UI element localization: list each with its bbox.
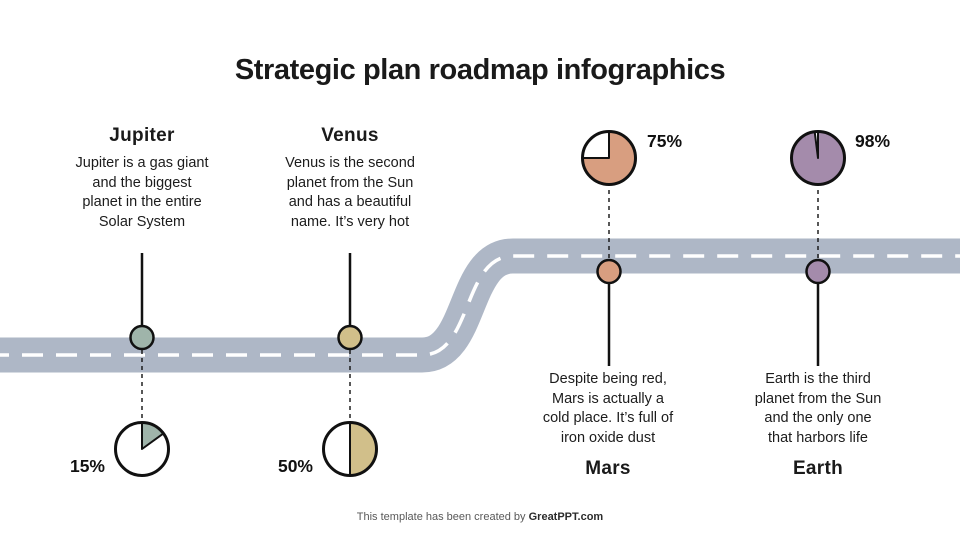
marker-dot-venus [339, 326, 362, 349]
planet-description-earth: Earth is the third planet from the Sun a… [708, 370, 928, 448]
marker-earth [807, 190, 830, 366]
pie-chart-mars [578, 127, 640, 189]
planet-description-mars: Despite being red, Mars is actually a co… [498, 370, 718, 448]
marker-dot-mars [598, 260, 621, 283]
marker-venus [339, 253, 362, 419]
planet-description-jupiter: Jupiter is a gas giant and the biggest p… [32, 154, 252, 232]
footer: This template has been created by GreatP… [0, 511, 960, 523]
marker-mars [598, 190, 621, 366]
marker-jupiter [131, 253, 154, 419]
planet-heading-mars: Mars [498, 458, 718, 480]
percent-label-venus: 50% [233, 456, 313, 478]
planet-heading-jupiter: Jupiter [32, 125, 252, 147]
slide: Strategic plan roadmap infographics [0, 0, 960, 540]
percent-label-mars: 75% [647, 131, 727, 153]
percent-label-jupiter: 15% [25, 456, 105, 478]
footer-brand: GreatPPT.com [529, 511, 604, 523]
pie-chart-venus [319, 418, 381, 480]
pie-chart-earth [787, 127, 849, 189]
pie-chart-jupiter [111, 418, 173, 480]
marker-dot-earth [807, 260, 830, 283]
percent-label-earth: 98% [855, 131, 935, 153]
planet-heading-venus: Venus [240, 125, 460, 147]
footer-credit-text: This template has been created by [357, 511, 529, 523]
marker-dot-jupiter [131, 326, 154, 349]
planet-description-venus: Venus is the second planet from the Sun … [240, 154, 460, 232]
planet-heading-earth: Earth [708, 458, 928, 480]
